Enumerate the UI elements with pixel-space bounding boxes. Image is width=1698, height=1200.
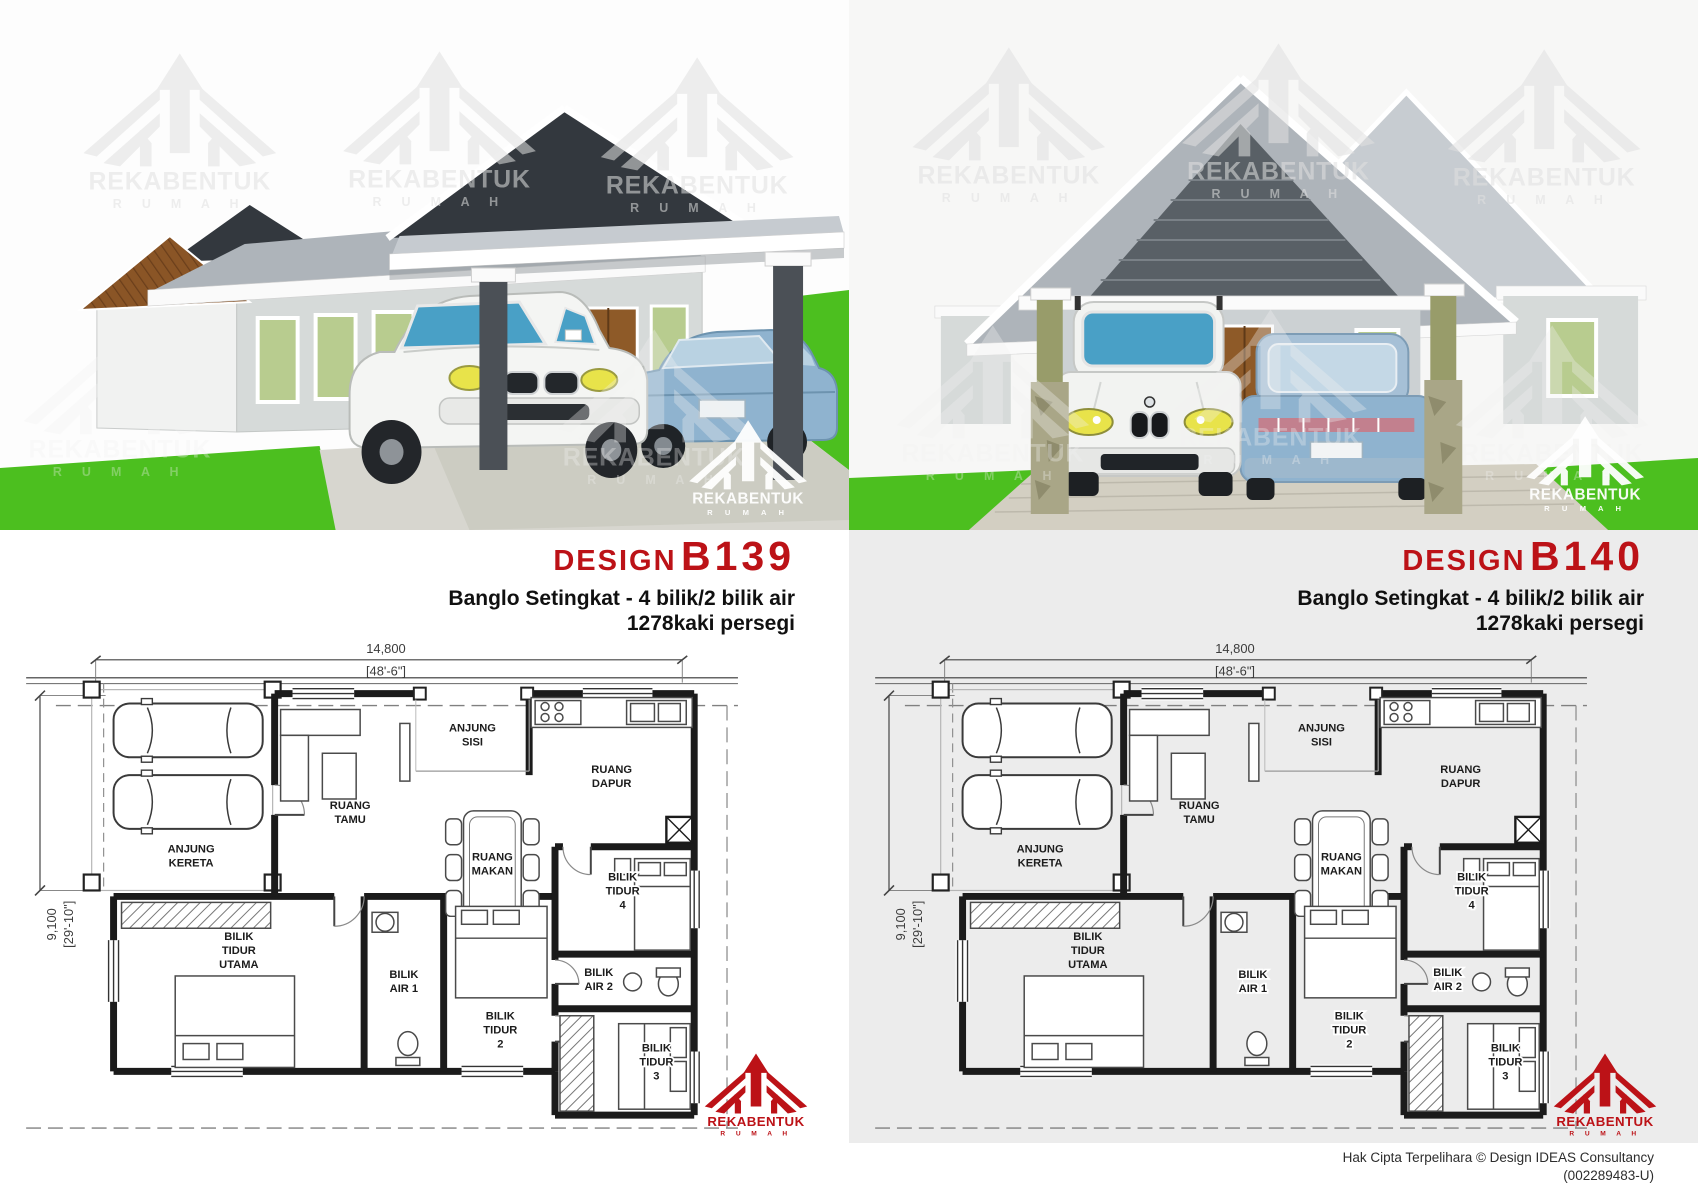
design-code-b139: B139 <box>681 533 795 579</box>
copyright-line-2: (002289483-U) <box>849 1167 1654 1185</box>
house-render-b140 <box>849 0 1698 530</box>
design-sheet: DESIGN B139 Banglo Setingkat - 4 bilik/2… <box>0 0 1698 1200</box>
floor-plan-b140 <box>849 626 1698 1143</box>
subtitle-b140: Banglo Setingkat - 4 bilik/2 bilik air <box>849 586 1644 611</box>
copyright-line-1: Hak Cipta Terpelihara © Design IDEAS Con… <box>849 1149 1654 1167</box>
title-block-b139: DESIGN B139 Banglo Setingkat - 4 bilik/2… <box>0 530 849 626</box>
title-block-b140: DESIGN B140 Banglo Setingkat - 4 bilik/2… <box>849 530 1698 626</box>
copyright-footer: Hak Cipta Terpelihara © Design IDEAS Con… <box>849 1143 1698 1200</box>
red-logo-b140 <box>1552 1051 1658 1139</box>
subtitle-b139: Banglo Setingkat - 4 bilik/2 bilik air <box>0 586 795 611</box>
floor-plan-b139 <box>0 626 849 1143</box>
footer-left <box>0 1143 849 1200</box>
house-render-b139 <box>0 0 849 530</box>
design-panel-b140: DESIGN B140 Banglo Setingkat - 4 bilik/2… <box>849 0 1698 1200</box>
design-word: DESIGN <box>553 545 676 577</box>
design-panel-b139: DESIGN B139 Banglo Setingkat - 4 bilik/2… <box>0 0 849 1200</box>
red-logo-b139 <box>703 1051 809 1139</box>
design-code-b140: B140 <box>1530 533 1644 579</box>
design-word: DESIGN <box>1402 545 1525 577</box>
